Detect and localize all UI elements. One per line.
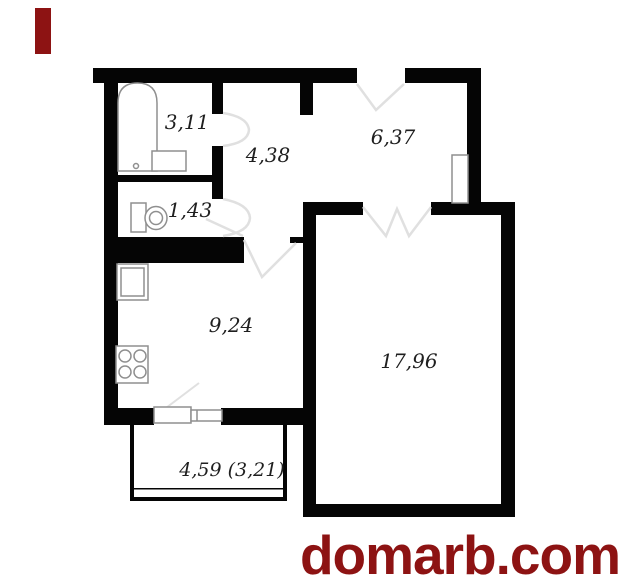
brand-mark xyxy=(35,8,51,54)
wall-segment xyxy=(221,408,316,425)
wall-segment xyxy=(212,83,223,114)
stove-burner-icon xyxy=(134,366,146,378)
balcony-rail-line xyxy=(132,488,285,490)
balcony-window-icon xyxy=(191,410,222,421)
wall-segment xyxy=(104,237,244,263)
wall-segment xyxy=(303,202,316,517)
room-label-kitchen: 9,24 xyxy=(209,313,254,337)
room-label-living-room: 17,96 xyxy=(380,349,438,373)
floor-plan-page: 3,11 4,38 6,37 1,43 9,24 17,96 4,59 (3,2… xyxy=(0,0,630,587)
room-label-entrance-hall: 6,37 xyxy=(371,125,416,149)
stove-burner-icon xyxy=(134,350,146,362)
wall-segment xyxy=(501,202,515,517)
stove-burner-icon xyxy=(119,350,131,362)
entrance-door-swing-icon xyxy=(357,84,404,110)
wall-segment xyxy=(303,202,363,215)
watermark-site-name: domarb.com xyxy=(300,524,620,586)
toilet-door-swing-icon xyxy=(223,199,250,236)
wardrobe-icon xyxy=(452,155,468,203)
wall-segment xyxy=(300,83,313,115)
stove-burner-icon xyxy=(119,366,131,378)
toilet-bowl-inner-icon xyxy=(150,212,163,225)
wall-segment xyxy=(104,408,154,425)
fridge-inner-icon xyxy=(121,268,144,296)
wall-segment xyxy=(93,68,357,83)
wall-segment xyxy=(114,175,214,182)
balcony-wall xyxy=(130,497,287,501)
room-label-balcony: 4,59 (3,21) xyxy=(178,459,284,481)
balcony-door-panel-icon xyxy=(154,407,191,423)
wall-segment xyxy=(303,504,515,517)
bathtub-icon xyxy=(118,83,157,171)
wall-segment xyxy=(212,146,223,199)
room-labels: 3,11 4,38 6,37 1,43 9,24 17,96 4,59 (3,2… xyxy=(165,110,438,481)
double-door-swing-icon xyxy=(363,207,431,236)
sink-icon xyxy=(152,151,186,171)
wall-segment xyxy=(290,237,303,243)
room-label-toilet: 1,43 xyxy=(168,198,213,222)
room-label-hallway: 4,38 xyxy=(245,143,291,167)
bathtub-drain-icon xyxy=(134,164,139,169)
toilet-tank-icon xyxy=(131,203,146,232)
bathroom-door-swing-icon xyxy=(223,113,249,146)
room-label-bathroom: 3,11 xyxy=(165,110,210,134)
floor-plan-svg: 3,11 4,38 6,37 1,43 9,24 17,96 4,59 (3,2… xyxy=(0,0,630,587)
wall-segment xyxy=(467,68,481,203)
kitchen-door-swing-icon xyxy=(244,240,296,277)
